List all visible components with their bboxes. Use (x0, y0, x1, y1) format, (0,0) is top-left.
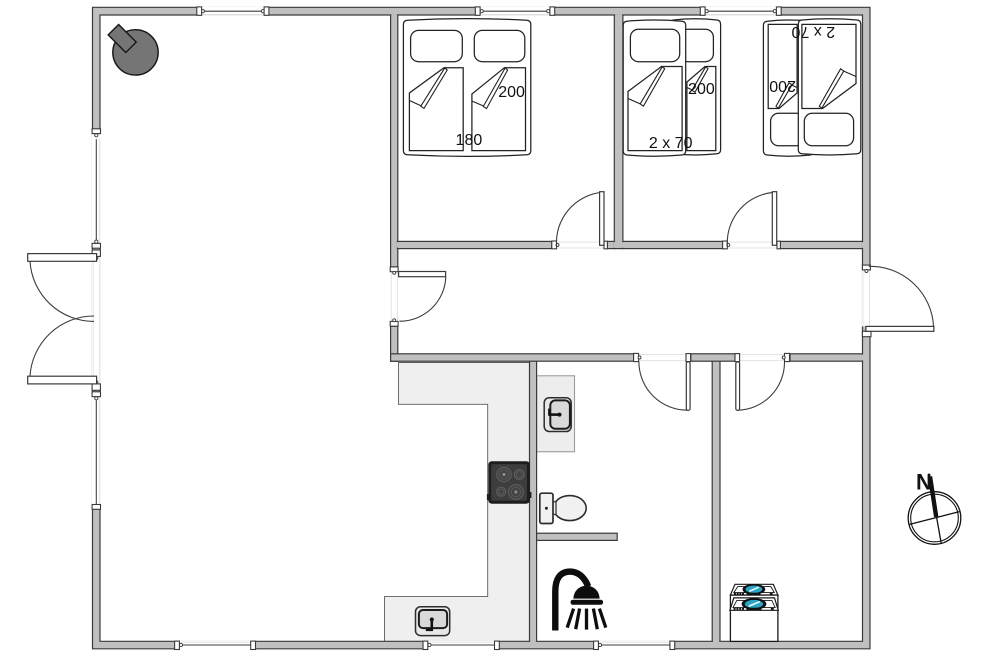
svg-text:N: N (916, 470, 932, 495)
svg-text:180: 180 (456, 132, 483, 149)
svg-text:2 x 70: 2 x 70 (649, 135, 693, 152)
svg-text:200: 200 (498, 84, 525, 101)
svg-text:200: 200 (688, 81, 715, 98)
